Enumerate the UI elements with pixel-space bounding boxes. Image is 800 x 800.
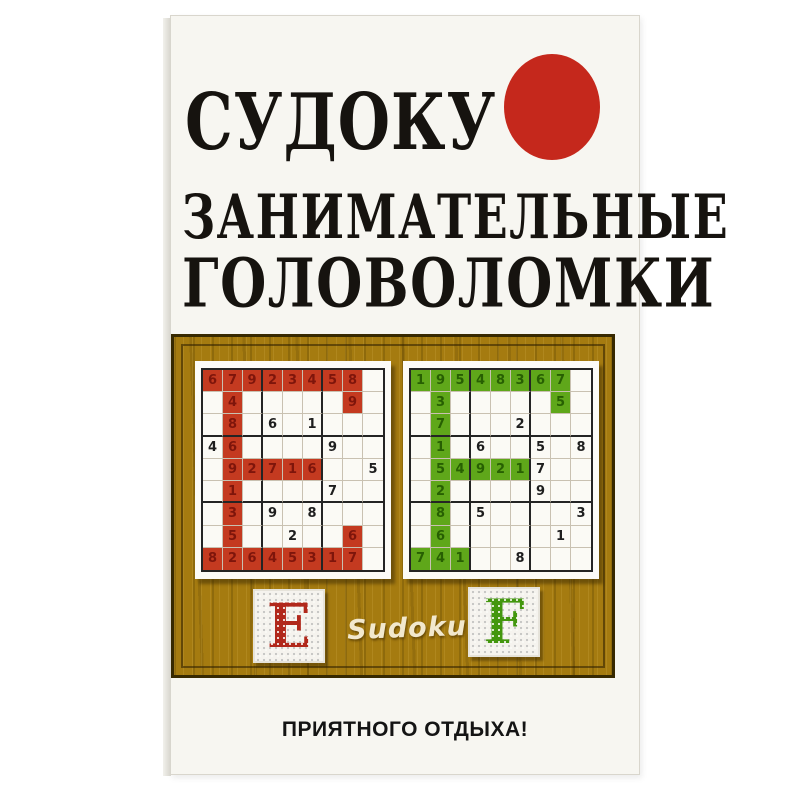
- sudoku-cell: 6: [223, 437, 243, 459]
- sudoku-cell: [363, 548, 383, 570]
- sudoku-cell: [283, 437, 303, 459]
- sudoku-cell: 4: [451, 459, 471, 481]
- sudoku-cell: [343, 481, 363, 503]
- sudoku-cell: [491, 437, 511, 459]
- sudoku-cell: [471, 526, 491, 548]
- sudoku-cell: [323, 459, 343, 481]
- sudoku-cell: 3: [511, 370, 531, 392]
- sudoku-cell: 8: [511, 548, 531, 570]
- sudoku-cell: 8: [571, 437, 591, 459]
- sudoku-cell: [303, 437, 323, 459]
- sudoku-cell: [451, 481, 471, 503]
- sudoku-cell: 2: [263, 370, 283, 392]
- sudoku-cell: [411, 459, 431, 481]
- sudoku-cell: 3: [303, 548, 323, 570]
- tagline: ПРИЯТНОГО ОТДЫХА!: [171, 718, 639, 742]
- sudoku-cell: [411, 481, 431, 503]
- sudoku-cell: [203, 414, 223, 436]
- sudoku-cell: [363, 526, 383, 548]
- sudoku-cell: [203, 392, 223, 414]
- sudoku-cell: 9: [343, 392, 363, 414]
- sudoku-cell: [551, 437, 571, 459]
- sudoku-cell: 8: [431, 503, 451, 525]
- sudoku-cell: 5: [531, 437, 551, 459]
- sudoku-cell: 5: [323, 370, 343, 392]
- book-cover: СУДОКУ ЗАНИМАТЕЛЬНЫЕ ГОЛОВОЛОМКИ 6792345…: [170, 15, 640, 775]
- title-sudoku: СУДОКУ: [185, 84, 496, 162]
- sudoku-cell: 6: [243, 548, 263, 570]
- sudoku-cell: [531, 526, 551, 548]
- sudoku-cell: [571, 526, 591, 548]
- sudoku-cell: [343, 437, 363, 459]
- sudoku-label: Sudoku: [341, 611, 472, 647]
- sudoku-cell: 5: [551, 392, 571, 414]
- sudoku-cell: 6: [531, 370, 551, 392]
- sudoku-cell: [411, 414, 431, 436]
- sudoku-grid-f: 195483673572165854921729853617418: [409, 368, 593, 572]
- sudoku-cell: [323, 526, 343, 548]
- sudoku-cell: [283, 414, 303, 436]
- sudoku-cell: [303, 526, 323, 548]
- sudoku-cell: [451, 437, 471, 459]
- sudoku-cell: [363, 503, 383, 525]
- sudoku-cell: 6: [263, 414, 283, 436]
- sudoku-cell: 3: [431, 392, 451, 414]
- sudoku-cell: 5: [451, 370, 471, 392]
- sudoku-card-e: 67923458498614699271651739852682645317: [195, 361, 391, 579]
- sudoku-cell: 4: [303, 370, 323, 392]
- sudoku-cell: [531, 414, 551, 436]
- sudoku-cell: [491, 392, 511, 414]
- sudoku-cell: [571, 548, 591, 570]
- sudoku-cell: [243, 392, 263, 414]
- sudoku-cell: 7: [431, 414, 451, 436]
- sudoku-cell: [203, 481, 223, 503]
- sudoku-cell: [511, 503, 531, 525]
- sudoku-cell: 6: [343, 526, 363, 548]
- sudoku-cell: 5: [471, 503, 491, 525]
- sudoku-cell: [551, 503, 571, 525]
- sudoku-cell: 6: [303, 459, 323, 481]
- sudoku-cell: 6: [471, 437, 491, 459]
- sudoku-cell: [451, 526, 471, 548]
- sudoku-cell: 7: [223, 370, 243, 392]
- sudoku-cell: 7: [551, 370, 571, 392]
- tile-letter-f: F: [483, 592, 524, 653]
- sudoku-cell: [531, 503, 551, 525]
- sudoku-cell: [243, 481, 263, 503]
- sudoku-cell: 1: [223, 481, 243, 503]
- sudoku-cell: [243, 414, 263, 436]
- book-spine-edge: [163, 18, 171, 776]
- sudoku-cell: [491, 503, 511, 525]
- sudoku-cell: 7: [531, 459, 551, 481]
- sudoku-cell: 7: [323, 481, 343, 503]
- sudoku-cell: 2: [511, 414, 531, 436]
- sudoku-cell: 7: [411, 548, 431, 570]
- sudoku-cell: [363, 370, 383, 392]
- sudoku-cell: [551, 548, 571, 570]
- sudoku-cell: 1: [303, 414, 323, 436]
- sudoku-cell: 1: [323, 548, 343, 570]
- sudoku-cell: 2: [283, 526, 303, 548]
- sudoku-cell: [411, 503, 431, 525]
- sudoku-cell: [203, 503, 223, 525]
- sudoku-cell: 9: [471, 459, 491, 481]
- sudoku-cell: 1: [551, 526, 571, 548]
- sudoku-cell: [491, 526, 511, 548]
- sudoku-cell: [451, 392, 471, 414]
- sudoku-cell: [491, 481, 511, 503]
- sudoku-cell: 4: [263, 548, 283, 570]
- sudoku-cell: 8: [303, 503, 323, 525]
- sudoku-cell: [343, 459, 363, 481]
- sudoku-cell: 8: [491, 370, 511, 392]
- title-golovolomki: ГОЛОВОЛОМКИ: [182, 250, 715, 318]
- sudoku-cell: 5: [363, 459, 383, 481]
- sudoku-cell: 2: [431, 481, 451, 503]
- sudoku-cell: 9: [263, 503, 283, 525]
- sudoku-cell: [263, 437, 283, 459]
- sudoku-cell: 1: [283, 459, 303, 481]
- sudoku-cell: 9: [323, 437, 343, 459]
- sudoku-cell: 9: [431, 370, 451, 392]
- sudoku-cell: [363, 392, 383, 414]
- sudoku-cell: [531, 392, 551, 414]
- sudoku-cell: 2: [223, 548, 243, 570]
- sudoku-cell: 1: [431, 437, 451, 459]
- sudoku-cell: [363, 481, 383, 503]
- sudoku-cell: 8: [223, 414, 243, 436]
- sudoku-cell: [283, 392, 303, 414]
- sudoku-cell: [343, 414, 363, 436]
- sudoku-cell: 5: [223, 526, 243, 548]
- sudoku-cell: [243, 437, 263, 459]
- sudoku-cell: [571, 370, 591, 392]
- book-cover-photo: СУДОКУ ЗАНИМАТЕЛЬНЫЕ ГОЛОВОЛОМКИ 6792345…: [0, 0, 800, 800]
- sudoku-cell: 2: [243, 459, 263, 481]
- sudoku-cell: [263, 481, 283, 503]
- sudoku-cell: [451, 503, 471, 525]
- sudoku-cell: [531, 548, 551, 570]
- sudoku-cell: 4: [203, 437, 223, 459]
- sudoku-cell: [511, 392, 531, 414]
- sudoku-cell: 3: [283, 370, 303, 392]
- sudoku-cell: [451, 414, 471, 436]
- sudoku-cell: 9: [531, 481, 551, 503]
- sudoku-cell: 6: [203, 370, 223, 392]
- sudoku-cell: [303, 392, 323, 414]
- sudoku-cell: 7: [263, 459, 283, 481]
- sudoku-cell: 6: [431, 526, 451, 548]
- wood-panel: 67923458498614699271651739852682645317 1…: [171, 334, 615, 678]
- sudoku-cell: [203, 459, 223, 481]
- sudoku-cell: [511, 526, 531, 548]
- sudoku-cell: [471, 548, 491, 570]
- sudoku-cell: [571, 414, 591, 436]
- sudoku-cell: [571, 481, 591, 503]
- sudoku-cell: [411, 526, 431, 548]
- sudoku-cell: 9: [223, 459, 243, 481]
- sudoku-cell: 4: [223, 392, 243, 414]
- sudoku-cell: 4: [471, 370, 491, 392]
- sudoku-cell: 5: [283, 548, 303, 570]
- sudoku-cell: [303, 481, 323, 503]
- sudoku-cell: [263, 392, 283, 414]
- sudoku-cell: [571, 392, 591, 414]
- sudoku-cell: 1: [451, 548, 471, 570]
- sudoku-cell: [363, 437, 383, 459]
- sudoku-cell: [471, 481, 491, 503]
- sudoku-cell: [411, 392, 431, 414]
- sudoku-cell: [203, 526, 223, 548]
- sudoku-cell: 8: [203, 548, 223, 570]
- sudoku-cell: 4: [431, 548, 451, 570]
- sudoku-cell: [471, 392, 491, 414]
- sudoku-cell: [411, 437, 431, 459]
- sudoku-cell: 1: [511, 459, 531, 481]
- letter-tile-e: E: [253, 589, 325, 663]
- sudoku-cell: 9: [243, 370, 263, 392]
- title-zanimatelnye: ЗАНИМАТЕЛЬНЫЕ: [182, 186, 729, 247]
- sudoku-cell: [363, 414, 383, 436]
- sudoku-cell: [283, 481, 303, 503]
- sudoku-cell: 3: [223, 503, 243, 525]
- sudoku-cell: [551, 459, 571, 481]
- tile-letter-e: E: [267, 596, 311, 657]
- sudoku-cell: [283, 503, 303, 525]
- red-sun-circle: [504, 54, 600, 160]
- sudoku-cell: [243, 526, 263, 548]
- sudoku-cell: [551, 481, 571, 503]
- sudoku-cell: 2: [491, 459, 511, 481]
- sudoku-cell: [511, 437, 531, 459]
- sudoku-cell: [471, 414, 491, 436]
- sudoku-cell: 7: [343, 548, 363, 570]
- sudoku-cell: 8: [343, 370, 363, 392]
- sudoku-cell: [243, 503, 263, 525]
- sudoku-cell: [491, 548, 511, 570]
- letter-tile-f: F: [468, 587, 540, 657]
- sudoku-cell: [551, 414, 571, 436]
- sudoku-cell: [263, 526, 283, 548]
- sudoku-grid-e: 67923458498614699271651739852682645317: [201, 368, 385, 572]
- sudoku-cell: [323, 503, 343, 525]
- sudoku-cell: [323, 414, 343, 436]
- sudoku-cell: [323, 392, 343, 414]
- sudoku-cell: [571, 459, 591, 481]
- sudoku-cell: [343, 503, 363, 525]
- sudoku-cell: 3: [571, 503, 591, 525]
- sudoku-cell: 5: [431, 459, 451, 481]
- sudoku-cell: [511, 481, 531, 503]
- sudoku-card-f: 195483673572165854921729853617418: [403, 361, 599, 579]
- sudoku-cell: 1: [411, 370, 431, 392]
- sudoku-cell: [491, 414, 511, 436]
